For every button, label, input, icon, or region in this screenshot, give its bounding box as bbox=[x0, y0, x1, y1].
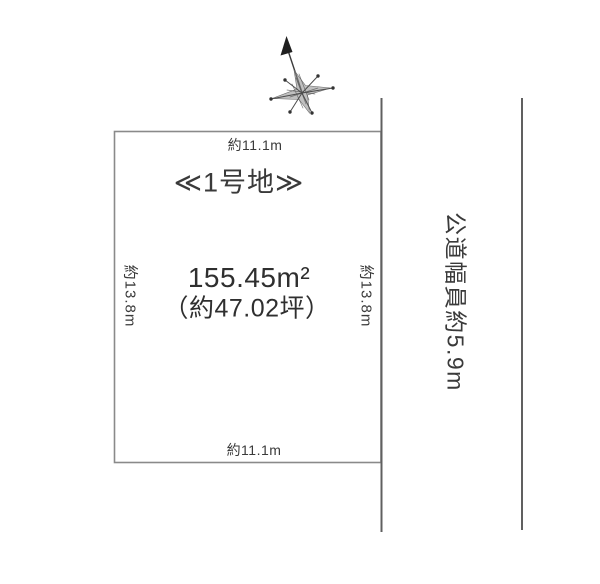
lot-area-tsubo: （約47.02坪） bbox=[163, 297, 330, 322]
compass-north-arrow-icon bbox=[269, 36, 334, 115]
dimension-bottom: 約11.1m bbox=[227, 443, 282, 457]
road-width-label: 公道幅員約5.9m bbox=[444, 212, 467, 392]
land-plot-diagram: 約11.1m ≪1号地≫ 155.45m² （約47.02坪） 約13.8m 約… bbox=[0, 0, 600, 584]
lot-title: ≪1号地≫ bbox=[174, 170, 305, 197]
dimension-top: 約11.1m bbox=[228, 138, 283, 152]
dimension-left: 約13.8m bbox=[123, 265, 138, 328]
lot-area-m2: 155.45m² bbox=[188, 264, 310, 292]
dimension-right: 約13.8m bbox=[359, 265, 374, 328]
